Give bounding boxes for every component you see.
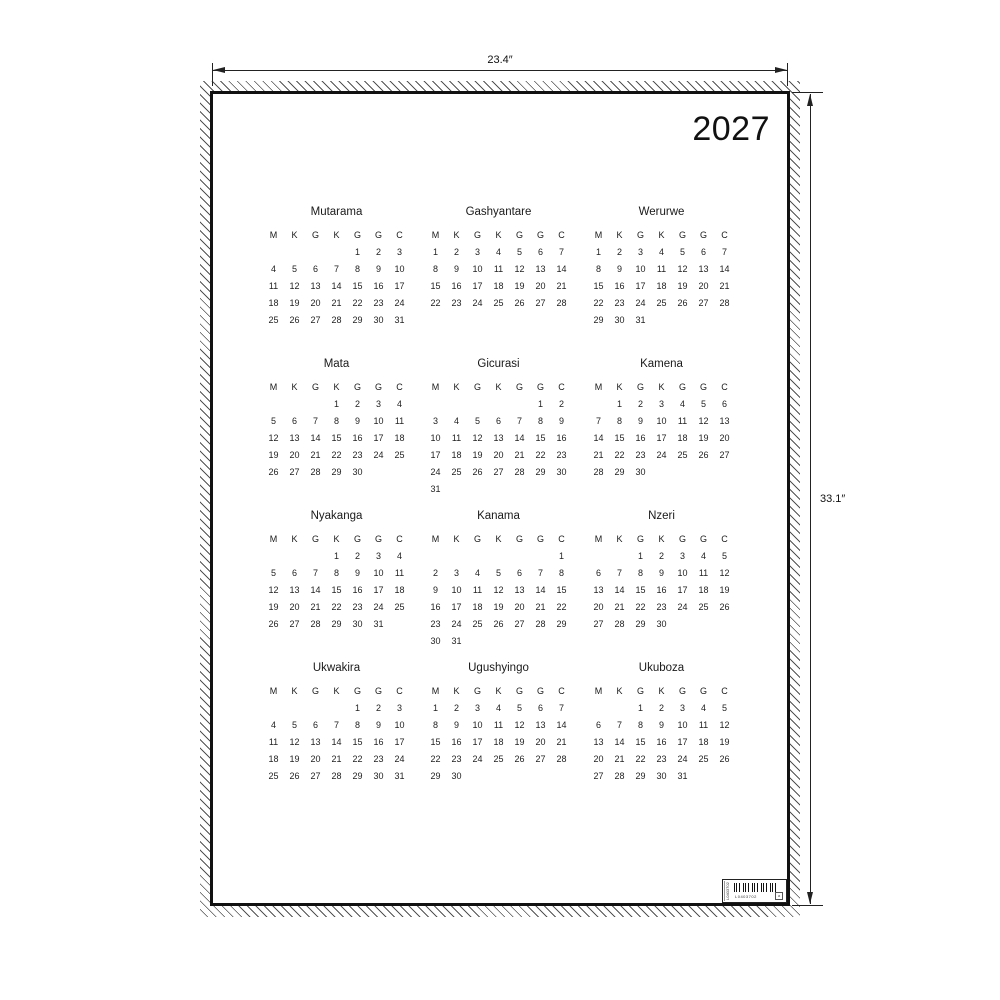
day-cell: 19 bbox=[263, 599, 284, 616]
day-cell: 31 bbox=[630, 312, 651, 329]
day-cell: 19 bbox=[714, 734, 735, 751]
day-cell: 20 bbox=[488, 447, 509, 464]
arrow-up-icon bbox=[807, 94, 813, 106]
day-cell: 14 bbox=[305, 430, 326, 447]
day-cell: 4 bbox=[389, 548, 410, 565]
week-row: 12131415161718 bbox=[263, 582, 410, 599]
weekday-label: G bbox=[305, 531, 326, 548]
weekday-label: G bbox=[467, 379, 488, 396]
day-cell: 20 bbox=[509, 599, 530, 616]
day-cell: 13 bbox=[305, 278, 326, 295]
week-row: 282930 bbox=[588, 464, 735, 481]
day-cell: 7 bbox=[551, 244, 572, 261]
weekday-label: G bbox=[530, 379, 551, 396]
day-cell: 24 bbox=[368, 447, 389, 464]
day-cell: 11 bbox=[263, 734, 284, 751]
day-cell: 8 bbox=[609, 413, 630, 430]
day-cell: 23 bbox=[368, 295, 389, 312]
empty-cell bbox=[425, 396, 446, 413]
day-cell: 24 bbox=[425, 464, 446, 481]
empty-cell bbox=[425, 548, 446, 565]
day-cell: 19 bbox=[672, 278, 693, 295]
weekday-label: G bbox=[630, 531, 651, 548]
day-cell: 2 bbox=[347, 548, 368, 565]
day-cell: 5 bbox=[714, 700, 735, 717]
day-cell: 29 bbox=[609, 464, 630, 481]
week-row: 2345678 bbox=[425, 565, 572, 582]
day-cell: 26 bbox=[714, 599, 735, 616]
week-row: 1234567 bbox=[425, 700, 572, 717]
empty-cell bbox=[651, 312, 672, 329]
weekday-header-row: MKGKGGC bbox=[588, 227, 735, 244]
empty-cell bbox=[284, 548, 305, 565]
day-cell: 21 bbox=[305, 447, 326, 464]
day-cell: 4 bbox=[488, 244, 509, 261]
day-cell: 12 bbox=[693, 413, 714, 430]
day-cell: 23 bbox=[425, 616, 446, 633]
day-cell: 2 bbox=[425, 565, 446, 582]
weekday-label: K bbox=[326, 531, 347, 548]
day-cell: 6 bbox=[305, 261, 326, 278]
day-cell: 2 bbox=[368, 244, 389, 261]
day-cell: 18 bbox=[389, 582, 410, 599]
day-cell: 14 bbox=[609, 734, 630, 751]
height-dimension-line bbox=[810, 94, 811, 904]
empty-cell bbox=[446, 396, 467, 413]
day-cell: 27 bbox=[588, 768, 609, 785]
weekday-label: G bbox=[347, 379, 368, 396]
weekday-label: G bbox=[630, 227, 651, 244]
empty-cell bbox=[467, 768, 488, 785]
weekday-label: K bbox=[488, 227, 509, 244]
weekday-label: C bbox=[714, 683, 735, 700]
week-row: 20212223242526 bbox=[588, 751, 735, 768]
day-cell: 11 bbox=[263, 278, 284, 295]
day-cell: 27 bbox=[714, 447, 735, 464]
empty-cell bbox=[284, 396, 305, 413]
week-row: 18192021222324 bbox=[263, 751, 410, 768]
day-cell: 12 bbox=[263, 430, 284, 447]
day-cell: 29 bbox=[425, 768, 446, 785]
week-row: 15161718192021 bbox=[588, 278, 735, 295]
day-cell: 8 bbox=[326, 413, 347, 430]
day-cell: 29 bbox=[588, 312, 609, 329]
day-cell: 4 bbox=[488, 700, 509, 717]
week-row: 11121314151617 bbox=[263, 734, 410, 751]
day-cell: 13 bbox=[284, 582, 305, 599]
day-cell: 13 bbox=[488, 430, 509, 447]
day-cell: 24 bbox=[630, 295, 651, 312]
day-cell: 13 bbox=[305, 734, 326, 751]
empty-cell bbox=[326, 244, 347, 261]
month-title: Ukuboza bbox=[588, 661, 735, 675]
day-cell: 14 bbox=[326, 734, 347, 751]
weekday-label: G bbox=[693, 227, 714, 244]
weekday-label: M bbox=[263, 683, 284, 700]
day-cell: 3 bbox=[368, 396, 389, 413]
day-cell: 3 bbox=[425, 413, 446, 430]
week-row: 3031 bbox=[425, 633, 572, 650]
week-row: 891011121314 bbox=[425, 261, 572, 278]
day-cell: 27 bbox=[530, 295, 551, 312]
day-cell: 21 bbox=[609, 751, 630, 768]
day-cell: 25 bbox=[488, 751, 509, 768]
week-row: 1234567 bbox=[588, 244, 735, 261]
weekday-label: K bbox=[488, 379, 509, 396]
day-cell: 29 bbox=[347, 312, 368, 329]
weekday-label: G bbox=[530, 683, 551, 700]
day-cell: 25 bbox=[693, 599, 714, 616]
day-cell: 14 bbox=[326, 278, 347, 295]
month-mata: MataMKGKGGC12345678910111213141516171819… bbox=[263, 357, 410, 481]
day-cell: 2 bbox=[551, 396, 572, 413]
weekday-label: M bbox=[425, 531, 446, 548]
day-cell: 5 bbox=[488, 565, 509, 582]
day-cell: 29 bbox=[326, 464, 347, 481]
empty-cell bbox=[588, 396, 609, 413]
empty-cell bbox=[672, 464, 693, 481]
day-cell: 3 bbox=[651, 396, 672, 413]
week-row: 567891011 bbox=[263, 413, 410, 430]
week-row: 13141516171819 bbox=[588, 582, 735, 599]
empty-cell bbox=[284, 244, 305, 261]
day-cell: 5 bbox=[284, 261, 305, 278]
weekday-label: G bbox=[509, 379, 530, 396]
day-cell: 9 bbox=[425, 582, 446, 599]
week-row: 123 bbox=[263, 244, 410, 261]
day-cell: 14 bbox=[609, 582, 630, 599]
weekday-label: K bbox=[326, 379, 347, 396]
day-cell: 15 bbox=[326, 430, 347, 447]
weekday-label: G bbox=[368, 227, 389, 244]
day-cell: 14 bbox=[509, 430, 530, 447]
day-cell: 1 bbox=[551, 548, 572, 565]
day-cell: 7 bbox=[530, 565, 551, 582]
day-cell: 8 bbox=[530, 413, 551, 430]
day-cell: 29 bbox=[630, 616, 651, 633]
day-cell: 4 bbox=[446, 413, 467, 430]
week-row: 45678910 bbox=[263, 261, 410, 278]
empty-cell bbox=[672, 312, 693, 329]
day-cell: 10 bbox=[368, 565, 389, 582]
day-cell: 5 bbox=[467, 413, 488, 430]
weekday-label: K bbox=[651, 379, 672, 396]
day-cell: 24 bbox=[389, 751, 410, 768]
day-cell: 13 bbox=[693, 261, 714, 278]
empty-cell bbox=[446, 548, 467, 565]
week-row: 9101112131415 bbox=[425, 582, 572, 599]
weekday-label: M bbox=[263, 379, 284, 396]
week-row: 19202122232425 bbox=[263, 447, 410, 464]
weekday-label: G bbox=[347, 227, 368, 244]
weekday-label: G bbox=[467, 683, 488, 700]
week-row: 10111213141516 bbox=[425, 430, 572, 447]
day-cell: 7 bbox=[609, 565, 630, 582]
month-title: Mata bbox=[263, 357, 410, 371]
day-cell: 20 bbox=[305, 295, 326, 312]
day-cell: 6 bbox=[714, 396, 735, 413]
day-cell: 10 bbox=[467, 717, 488, 734]
day-cell: 16 bbox=[347, 430, 368, 447]
month-nzeri: NzeriMKGKGGC1234567891011121314151617181… bbox=[588, 509, 735, 633]
day-cell: 3 bbox=[630, 244, 651, 261]
empty-cell bbox=[651, 464, 672, 481]
day-cell: 30 bbox=[347, 616, 368, 633]
week-row: 891011121314 bbox=[425, 717, 572, 734]
weekday-label: G bbox=[347, 531, 368, 548]
day-cell: 11 bbox=[488, 261, 509, 278]
day-cell: 28 bbox=[509, 464, 530, 481]
weekday-label: K bbox=[446, 227, 467, 244]
day-cell: 14 bbox=[714, 261, 735, 278]
day-cell: 16 bbox=[446, 278, 467, 295]
empty-cell bbox=[263, 244, 284, 261]
week-row: 25262728293031 bbox=[263, 312, 410, 329]
day-cell: 1 bbox=[630, 548, 651, 565]
day-cell: 25 bbox=[488, 295, 509, 312]
day-cell: 10 bbox=[651, 413, 672, 430]
day-cell: 22 bbox=[347, 295, 368, 312]
week-row: 22232425262728 bbox=[425, 295, 572, 312]
day-cell: 7 bbox=[509, 413, 530, 430]
day-cell: 27 bbox=[488, 464, 509, 481]
day-cell: 22 bbox=[425, 751, 446, 768]
day-cell: 22 bbox=[630, 599, 651, 616]
empty-cell bbox=[326, 700, 347, 717]
months-grid: MutaramaMKGKGGC1234567891011121314151617… bbox=[213, 94, 787, 903]
week-row: 15161718192021 bbox=[425, 278, 572, 295]
day-cell: 4 bbox=[693, 548, 714, 565]
weekday-label: G bbox=[630, 683, 651, 700]
day-cell: 16 bbox=[446, 734, 467, 751]
day-cell: 17 bbox=[389, 278, 410, 295]
weekday-label: M bbox=[588, 379, 609, 396]
day-cell: 10 bbox=[389, 717, 410, 734]
weekday-label: C bbox=[551, 379, 572, 396]
day-cell: 16 bbox=[609, 278, 630, 295]
week-row: 18192021222324 bbox=[263, 295, 410, 312]
week-row: 21222324252627 bbox=[588, 447, 735, 464]
day-cell: 28 bbox=[530, 616, 551, 633]
empty-cell bbox=[530, 768, 551, 785]
month-title: Nyakanga bbox=[263, 509, 410, 523]
weekday-label: K bbox=[651, 531, 672, 548]
day-cell: 17 bbox=[467, 734, 488, 751]
day-cell: 10 bbox=[446, 582, 467, 599]
day-cell: 28 bbox=[305, 616, 326, 633]
weekday-header-row: MKGKGGC bbox=[588, 683, 735, 700]
day-cell: 11 bbox=[488, 717, 509, 734]
day-cell: 5 bbox=[693, 396, 714, 413]
day-cell: 18 bbox=[488, 278, 509, 295]
empty-cell bbox=[389, 464, 410, 481]
empty-cell bbox=[488, 768, 509, 785]
day-cell: 9 bbox=[630, 413, 651, 430]
day-cell: 18 bbox=[693, 734, 714, 751]
weekday-label: K bbox=[326, 227, 347, 244]
day-cell: 20 bbox=[284, 447, 305, 464]
day-cell: 23 bbox=[446, 751, 467, 768]
weekday-label: K bbox=[284, 531, 305, 548]
day-cell: 25 bbox=[467, 616, 488, 633]
week-row: 1 bbox=[425, 548, 572, 565]
day-cell: 6 bbox=[588, 717, 609, 734]
day-cell: 21 bbox=[305, 599, 326, 616]
day-cell: 9 bbox=[651, 717, 672, 734]
week-row: 16171819202122 bbox=[425, 599, 572, 616]
day-cell: 1 bbox=[609, 396, 630, 413]
weekday-label: G bbox=[693, 531, 714, 548]
day-cell: 19 bbox=[714, 582, 735, 599]
day-cell: 5 bbox=[672, 244, 693, 261]
weekday-label: M bbox=[425, 227, 446, 244]
day-cell: 12 bbox=[509, 717, 530, 734]
weekday-label: C bbox=[389, 379, 410, 396]
weekday-label: K bbox=[326, 683, 347, 700]
day-cell: 4 bbox=[389, 396, 410, 413]
day-cell: 16 bbox=[368, 278, 389, 295]
week-row: 13141516171819 bbox=[588, 734, 735, 751]
week-row: 891011121314 bbox=[588, 261, 735, 278]
day-cell: 29 bbox=[630, 768, 651, 785]
day-cell: 3 bbox=[389, 244, 410, 261]
day-cell: 15 bbox=[630, 734, 651, 751]
day-cell: 8 bbox=[425, 717, 446, 734]
day-cell: 20 bbox=[693, 278, 714, 295]
day-cell: 5 bbox=[714, 548, 735, 565]
empty-cell bbox=[530, 481, 551, 498]
day-cell: 24 bbox=[446, 616, 467, 633]
day-cell: 26 bbox=[263, 464, 284, 481]
day-cell: 6 bbox=[305, 717, 326, 734]
day-cell: 18 bbox=[672, 430, 693, 447]
barcode-side-text: L0403702 bbox=[724, 881, 732, 901]
day-cell: 23 bbox=[446, 295, 467, 312]
day-cell: 24 bbox=[672, 751, 693, 768]
day-cell: 15 bbox=[630, 582, 651, 599]
weekday-label: C bbox=[714, 379, 735, 396]
day-cell: 29 bbox=[347, 768, 368, 785]
day-cell: 12 bbox=[488, 582, 509, 599]
week-row: 123 bbox=[263, 700, 410, 717]
week-row: 1234 bbox=[263, 396, 410, 413]
weekday-label: G bbox=[530, 531, 551, 548]
weekday-label: K bbox=[609, 227, 630, 244]
empty-cell bbox=[693, 616, 714, 633]
day-cell: 18 bbox=[488, 734, 509, 751]
day-cell: 10 bbox=[389, 261, 410, 278]
weekday-label: G bbox=[368, 531, 389, 548]
height-dimension-label: 33.1″ bbox=[820, 493, 845, 505]
day-cell: 28 bbox=[609, 768, 630, 785]
day-cell: 17 bbox=[368, 430, 389, 447]
day-cell: 26 bbox=[488, 616, 509, 633]
day-cell: 12 bbox=[672, 261, 693, 278]
day-cell: 23 bbox=[347, 447, 368, 464]
weekday-header-row: MKGKGGC bbox=[263, 379, 410, 396]
empty-cell bbox=[714, 312, 735, 329]
weekday-label: G bbox=[305, 379, 326, 396]
week-row: 6789101112 bbox=[588, 565, 735, 582]
day-cell: 23 bbox=[651, 751, 672, 768]
day-cell: 9 bbox=[609, 261, 630, 278]
day-cell: 6 bbox=[693, 244, 714, 261]
week-row: 78910111213 bbox=[588, 413, 735, 430]
month-title: Kamena bbox=[588, 357, 735, 371]
day-cell: 17 bbox=[446, 599, 467, 616]
month-kamena: KamenaMKGKGGC123456789101112131415161718… bbox=[588, 357, 735, 481]
weekday-label: G bbox=[467, 531, 488, 548]
month-mutarama: MutaramaMKGKGGC1234567891011121314151617… bbox=[263, 205, 410, 329]
weekday-label: G bbox=[672, 683, 693, 700]
day-cell: 24 bbox=[389, 295, 410, 312]
weekday-header-row: MKGKGGC bbox=[263, 227, 410, 244]
day-cell: 16 bbox=[425, 599, 446, 616]
day-cell: 22 bbox=[609, 447, 630, 464]
day-cell: 22 bbox=[347, 751, 368, 768]
empty-cell bbox=[368, 464, 389, 481]
weekday-label: M bbox=[263, 531, 284, 548]
weekday-label: G bbox=[305, 683, 326, 700]
week-row: 1234567 bbox=[425, 244, 572, 261]
day-cell: 5 bbox=[509, 244, 530, 261]
day-cell: 5 bbox=[263, 565, 284, 582]
day-cell: 4 bbox=[651, 244, 672, 261]
day-cell: 16 bbox=[651, 582, 672, 599]
day-cell: 12 bbox=[467, 430, 488, 447]
day-cell: 6 bbox=[284, 565, 305, 582]
day-cell: 25 bbox=[263, 768, 284, 785]
day-cell: 9 bbox=[368, 261, 389, 278]
empty-cell bbox=[588, 700, 609, 717]
empty-cell bbox=[509, 633, 530, 650]
weekday-header-row: MKGKGGC bbox=[588, 379, 735, 396]
weekday-header-row: MKGKGGC bbox=[425, 683, 572, 700]
weekday-label: G bbox=[305, 227, 326, 244]
empty-cell bbox=[509, 481, 530, 498]
weekday-label: G bbox=[368, 683, 389, 700]
day-cell: 3 bbox=[467, 700, 488, 717]
day-cell: 7 bbox=[305, 413, 326, 430]
empty-cell bbox=[551, 768, 572, 785]
weekday-header-row: MKGKGGC bbox=[425, 379, 572, 396]
month-ukwakira: UkwakiraMKGKGGC1234567891011121314151617… bbox=[263, 661, 410, 785]
week-row: 20212223242526 bbox=[588, 599, 735, 616]
empty-cell bbox=[263, 548, 284, 565]
day-cell: 8 bbox=[630, 565, 651, 582]
empty-cell bbox=[467, 548, 488, 565]
day-cell: 31 bbox=[389, 312, 410, 329]
day-cell: 20 bbox=[530, 278, 551, 295]
day-cell: 30 bbox=[425, 633, 446, 650]
day-cell: 14 bbox=[588, 430, 609, 447]
day-cell: 9 bbox=[347, 413, 368, 430]
day-cell: 15 bbox=[551, 582, 572, 599]
day-cell: 22 bbox=[630, 751, 651, 768]
empty-cell bbox=[588, 548, 609, 565]
day-cell: 26 bbox=[284, 768, 305, 785]
weekday-label: G bbox=[672, 227, 693, 244]
day-cell: 14 bbox=[551, 717, 572, 734]
day-cell: 28 bbox=[551, 295, 572, 312]
day-cell: 12 bbox=[284, 734, 305, 751]
day-cell: 22 bbox=[326, 447, 347, 464]
day-cell: 24 bbox=[467, 295, 488, 312]
day-cell: 11 bbox=[693, 565, 714, 582]
day-cell: 30 bbox=[609, 312, 630, 329]
day-cell: 22 bbox=[551, 599, 572, 616]
week-row: 123456 bbox=[588, 396, 735, 413]
